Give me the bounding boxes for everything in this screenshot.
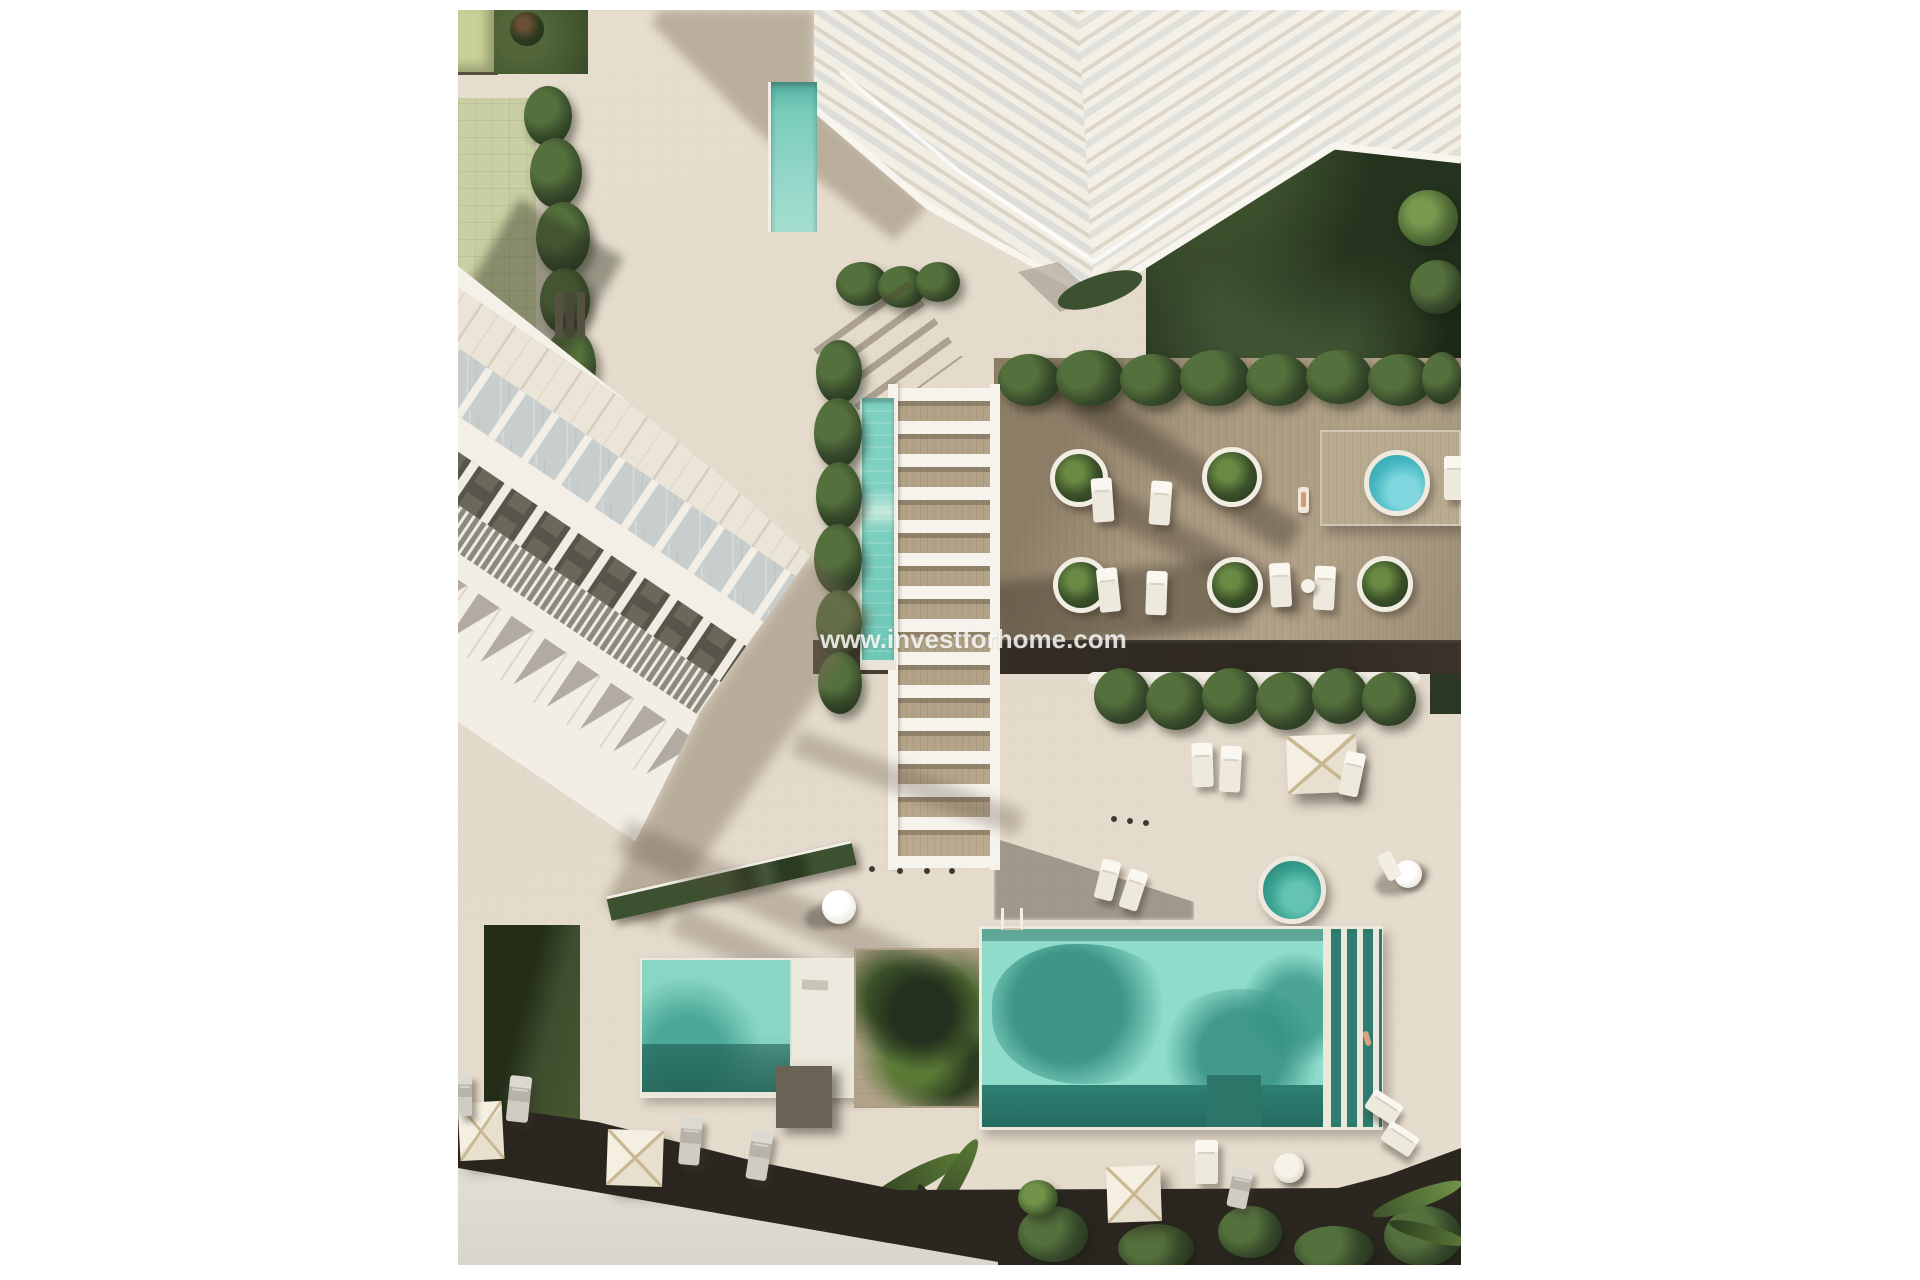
townhouse-row	[458, 10, 1461, 1010]
sun-lounger	[1380, 1121, 1420, 1158]
towel-lounger	[458, 1074, 472, 1116]
kids-pool-shadow-band	[642, 1044, 790, 1092]
pool-edge-shade	[982, 929, 1380, 941]
band-vegetation	[1118, 1224, 1194, 1265]
main-pool	[979, 926, 1383, 1130]
towel-lounger	[678, 1116, 703, 1166]
band-vegetation	[1218, 1206, 1282, 1258]
pool-step-notch	[1207, 1075, 1261, 1127]
shelf-towel	[802, 979, 828, 990]
round-parasol	[822, 890, 856, 924]
pool-bottom-shadow-band	[982, 1085, 1380, 1127]
band-vegetation	[1018, 1206, 1088, 1262]
watermark: www.investforhome.com	[820, 624, 1127, 655]
square-parasol	[1106, 1165, 1162, 1223]
kids-pool-shelf	[790, 960, 860, 1058]
sun-lounger	[1195, 1140, 1218, 1184]
round-lounge-chair	[1274, 1153, 1304, 1183]
aerial-render-photo: www.investforhome.com	[458, 10, 1461, 1265]
band-vegetation	[1018, 1180, 1058, 1216]
pool-step-block	[776, 1066, 832, 1128]
band-vegetation	[1294, 1226, 1374, 1265]
pool-ladder	[1001, 908, 1023, 930]
square-parasol	[606, 1129, 664, 1187]
lawn	[484, 925, 580, 1125]
palm-tree	[856, 950, 988, 1106]
